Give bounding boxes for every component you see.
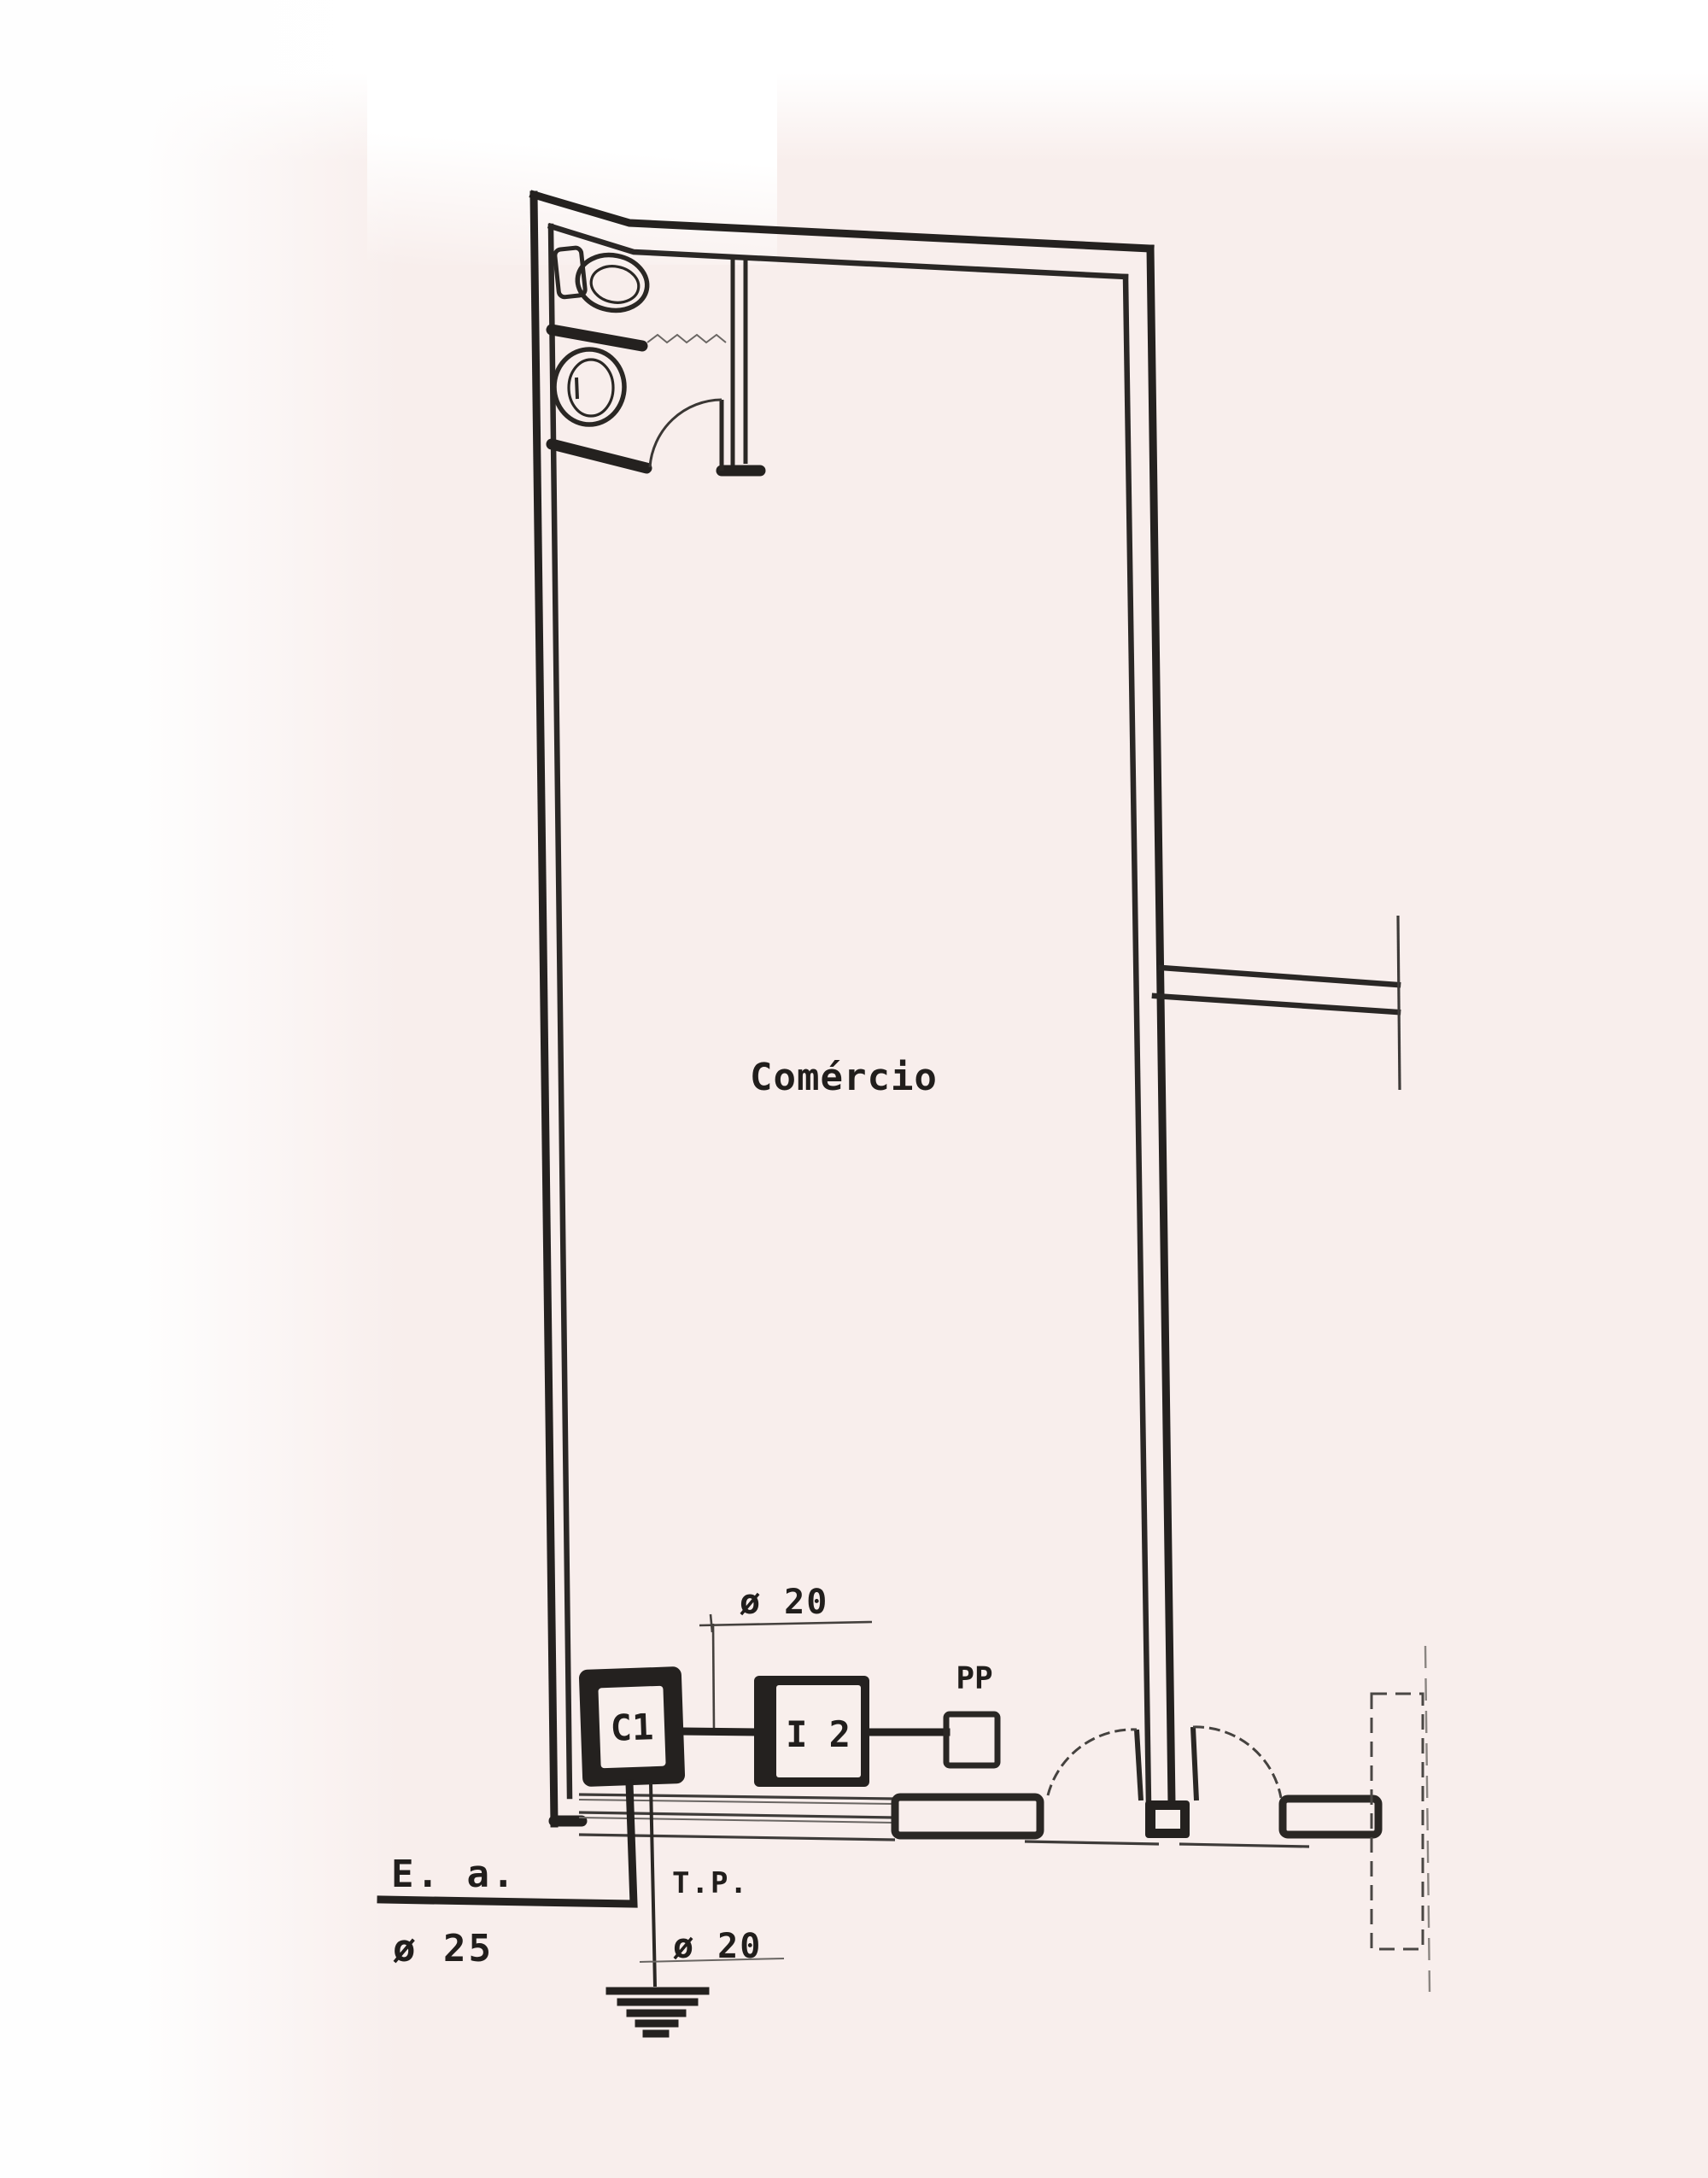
storefront-wall-segment-right (1283, 1799, 1378, 1835)
i2-meter-box: I 2 (754, 1676, 869, 1787)
c1-box-label: C1 (610, 1706, 654, 1749)
water-entry-diameter-label: ø 25 (393, 1927, 494, 1970)
bathroom (552, 247, 760, 471)
c1-distribution-box: C1 (579, 1666, 686, 1787)
shower-curtain-zigzag (647, 335, 726, 343)
partition-top-line (1161, 968, 1398, 985)
window-band-sill-line (579, 1835, 895, 1840)
right-partition-wall (1155, 916, 1400, 1090)
right-door-leaf (1193, 1727, 1196, 1800)
storefront-wall-segment-left (895, 1797, 1040, 1835)
post-inner (1155, 1810, 1180, 1829)
service-entrance-diagram: ø 20 C1 I 2 PP (381, 1583, 997, 2034)
left-door-leaf (1137, 1730, 1141, 1800)
toilet-sink-partition-wall (552, 330, 642, 346)
entrance-center-post (1145, 1800, 1190, 1838)
right-wall-inner-line (1126, 277, 1149, 1804)
right-wall-outer-line (1150, 249, 1172, 1804)
partition-end-cap-line (1398, 916, 1400, 1090)
window-band-line-4 (579, 1818, 895, 1823)
i2-box-label: I 2 (786, 1713, 851, 1755)
bathroom-door-swing-arc (650, 400, 722, 467)
ground-symbol (610, 1991, 705, 2034)
floor-plan-drawing: ø 20 C1 I 2 PP (0, 0, 1708, 2178)
window-band-line-3 (579, 1812, 895, 1818)
conduit-c1-to-i2 (683, 1731, 754, 1732)
top-wall-outer-line (534, 195, 1150, 249)
sink-tap-mark (576, 378, 577, 399)
pp-box-label: PP (956, 1661, 992, 1696)
partition-bottom-line (1155, 996, 1398, 1012)
water-entry-label: E. a. (391, 1853, 517, 1896)
ground-tube-label: T.P. (672, 1866, 749, 1900)
exterior-walls (534, 195, 1172, 1824)
pp-box: PP (946, 1661, 997, 1765)
scanned-floor-plan-page: ø 20 C1 I 2 PP (0, 0, 1708, 2178)
bathroom-bottom-wall (552, 444, 646, 468)
left-door-swing-arc (1048, 1730, 1137, 1795)
toilet-symbol (554, 247, 652, 316)
toilet-bowl-inner (588, 262, 642, 307)
pp-box-border (946, 1714, 997, 1765)
conduit-diameter-label: ø 20 (740, 1583, 828, 1622)
property-limit-line (1425, 1646, 1430, 1992)
room-label: Comércio (750, 1056, 938, 1099)
dimension-line (699, 1622, 872, 1625)
dimension-tick (711, 1614, 712, 1632)
sink-symbol (554, 349, 624, 424)
right-door-swing-arc (1193, 1727, 1281, 1798)
left-door-threshold-line (1025, 1841, 1159, 1844)
dimension-leader-line (713, 1624, 714, 1729)
right-door-threshold-line (1179, 1844, 1309, 1847)
